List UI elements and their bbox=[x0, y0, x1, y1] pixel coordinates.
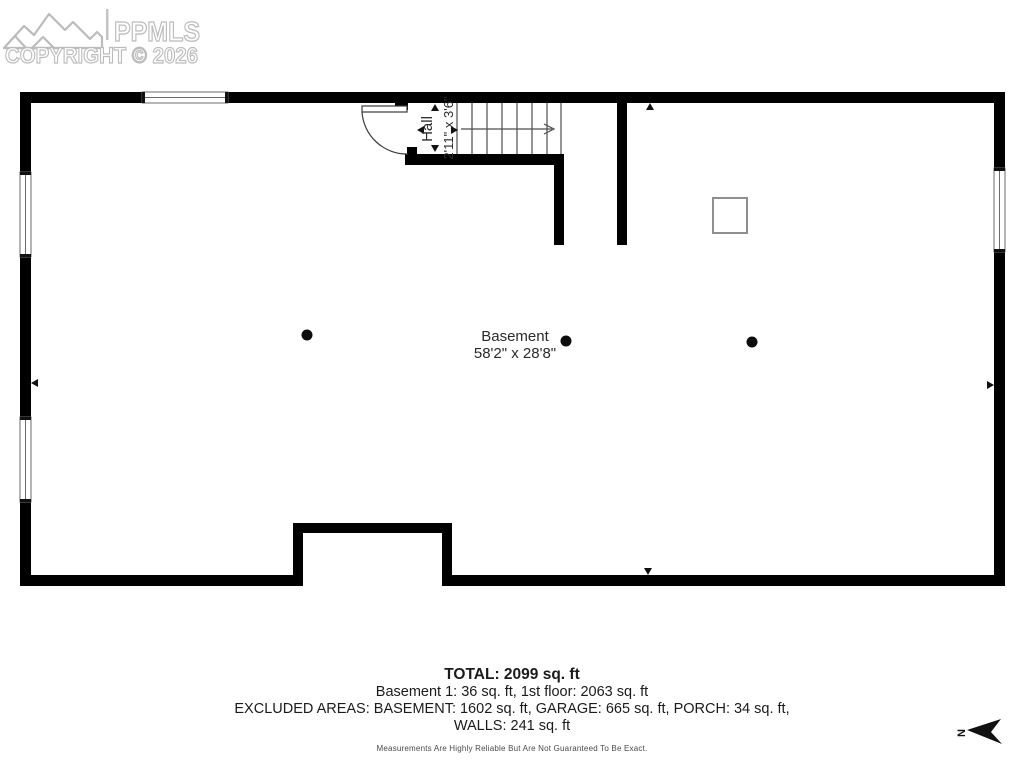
utility-box bbox=[713, 198, 747, 233]
wall-bottom-left bbox=[20, 575, 303, 586]
hall-dims-label: 2'11" x 3'6" bbox=[441, 82, 457, 174]
support-post-dot bbox=[747, 337, 758, 348]
tick-bottom-wall bbox=[644, 568, 652, 575]
summary-total: TOTAL: 2099 sq. ft bbox=[0, 666, 1024, 684]
wall-hall-nub bbox=[407, 147, 417, 155]
wall-left bbox=[20, 92, 31, 586]
area-summary: TOTAL: 2099 sq. ft Basement 1: 36 sq. ft… bbox=[0, 666, 1024, 753]
floorplan-page: PPMLS COPYRIGHT © 2026 bbox=[0, 0, 1024, 767]
summary-excluded: EXCLUDED AREAS: BASEMENT: 1602 sq. ft, G… bbox=[0, 701, 1024, 718]
tick-top-wall bbox=[646, 103, 654, 110]
north-arrow-icon: N bbox=[948, 703, 1018, 753]
window-right bbox=[994, 168, 1005, 252]
door-panel bbox=[362, 106, 407, 112]
measurement-disclaimer: Measurements Are Highly Reliable But Are… bbox=[0, 744, 1024, 753]
north-arrowhead bbox=[967, 719, 1002, 744]
window-left-lower bbox=[20, 417, 31, 502]
wall-stair-right bbox=[554, 165, 564, 245]
wall-bump-top bbox=[293, 523, 452, 533]
wall-interior bbox=[617, 103, 627, 245]
hall-label: Hall bbox=[418, 99, 438, 159]
window-top bbox=[142, 92, 228, 103]
door-swing-arc bbox=[362, 112, 408, 154]
stairs bbox=[457, 103, 561, 154]
entry-door bbox=[362, 106, 408, 154]
support-post-dot bbox=[302, 330, 313, 341]
wall-bottom-right bbox=[442, 575, 1005, 586]
summary-walls: WALLS: 241 sq. ft bbox=[0, 718, 1024, 735]
north-label: N bbox=[956, 729, 968, 737]
wall-right bbox=[994, 92, 1005, 586]
windows bbox=[20, 92, 1005, 502]
floorplan-drawing bbox=[0, 0, 1024, 767]
summary-breakdown: Basement 1: 36 sq. ft, 1st floor: 2063 s… bbox=[0, 684, 1024, 701]
basement-label: Basement bbox=[415, 328, 615, 345]
tick-left-wall bbox=[31, 379, 38, 387]
basement-dims-label: 58'2" x 28'8" bbox=[415, 345, 615, 362]
tick-right-wall bbox=[987, 381, 994, 389]
window-left-upper bbox=[20, 172, 31, 257]
